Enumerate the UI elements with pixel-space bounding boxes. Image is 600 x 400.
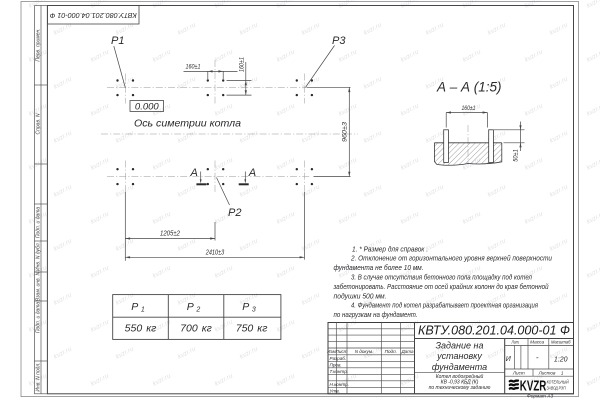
svg-text:2. Отклонение от горизонтально: 2. Отклонение от горизонтального уровня … <box>350 255 552 263</box>
svg-text:Инв. N подл.: Инв. N подл. <box>36 362 42 391</box>
svg-text:1. * Размер для справок .: 1. * Размер для справок . <box>352 245 428 253</box>
svg-text:А – А (1:5): А – А (1:5) <box>436 80 502 95</box>
svg-text:4. Фундамент под котел разраба: 4. Фундамент под котел разрабатывает про… <box>351 302 538 310</box>
svg-text:0.000: 0.000 <box>135 102 159 113</box>
svg-text:Дата: Дата <box>400 349 414 354</box>
svg-text:Перв. примен.: Перв. примен. <box>36 28 42 61</box>
svg-text:ЗАВОД РЭП: ЗАВОД РЭП <box>547 386 566 391</box>
svg-text:1:20: 1:20 <box>554 357 568 364</box>
svg-text:Н.контр.: Н.контр. <box>330 382 349 387</box>
svg-text:3. В случае отсутствия бетонно: 3. В случае отсутствия бетонного пола пл… <box>351 274 532 282</box>
svg-text:Инв. N дубл.: Инв. N дубл. <box>36 242 42 271</box>
svg-text:Пров.: Пров. <box>330 362 342 367</box>
svg-text:Масштаб: Масштаб <box>551 340 571 345</box>
svg-text:KVZR: KVZR <box>520 378 547 395</box>
svg-text:Подп. и дата: Подп. и дата <box>36 302 42 334</box>
svg-text:забетонировать. Расстояние от: забетонировать. Расстояние от осей крайн… <box>333 283 549 291</box>
svg-text:по нагрузкам на фундамент.: по нагрузкам на фундамент. <box>334 311 418 319</box>
svg-text:960±3: 960±3 <box>342 122 349 142</box>
svg-text:Задание на: Задание на <box>436 341 484 351</box>
svg-text:КОТЕЛЬНЫЙ: КОТЕЛЬНЫЙ <box>547 378 570 385</box>
svg-text:700кг: 700кг <box>180 323 212 335</box>
svg-text:установку: установку <box>436 351 482 361</box>
svg-text:50±1: 50±1 <box>513 149 520 162</box>
svg-text:550кг: 550кг <box>125 323 157 335</box>
svg-text:КВТУ.080.201.04.000-01 Ф: КВТУ.080.201.04.000-01 Ф <box>49 11 136 20</box>
svg-text:Листов: Листов <box>538 371 556 376</box>
svg-text:1205±2: 1205±2 <box>160 231 180 238</box>
svg-text:Взам. инв. N: Взам. инв. N <box>36 272 42 302</box>
svg-text:-: - <box>536 353 539 362</box>
svg-text:P2: P2 <box>228 207 241 219</box>
svg-text:Формат А3: Формат А3 <box>527 393 554 399</box>
svg-text:P1: P1 <box>111 35 124 47</box>
svg-text:P3: P3 <box>332 35 346 47</box>
svg-text:1: 1 <box>561 371 564 376</box>
svg-text:160±1: 160±1 <box>186 63 201 70</box>
svg-text:Т.контр.: Т.контр. <box>330 369 349 374</box>
svg-text:160±1: 160±1 <box>239 57 246 72</box>
svg-text:Ось симетрии котла: Ось симетрии котла <box>134 118 241 130</box>
svg-text:160±1: 160±1 <box>462 105 476 112</box>
svg-text:фундамента: фундамента <box>432 362 487 372</box>
svg-text:Лист: Лист <box>335 349 348 354</box>
svg-text:N докум.: N докум. <box>355 349 374 354</box>
svg-text:фундамента не более 10 мм.: фундамента не более 10 мм. <box>334 264 424 272</box>
svg-text:A: A <box>190 167 198 179</box>
svg-text:750кг: 750кг <box>236 323 268 335</box>
svg-text:подушки 500 мм.: подушки 500 мм. <box>334 292 387 300</box>
svg-text:A: A <box>248 167 256 179</box>
svg-text:Справ. N: Справ. N <box>36 113 42 134</box>
svg-text:КВТУ.080.201.04.000-01 Ф: КВТУ.080.201.04.000-01 Ф <box>418 323 570 338</box>
svg-text:Подп. и дата: Подп. и дата <box>36 207 42 239</box>
svg-text:Масса: Масса <box>530 340 544 345</box>
svg-text:2410±3: 2410±3 <box>205 249 224 256</box>
svg-text:Подп.: Подп. <box>385 349 397 354</box>
svg-text:Лист: Лист <box>512 371 525 376</box>
svg-text:Лит.: Лит. <box>511 340 520 345</box>
svg-text:Утв.: Утв. <box>330 388 340 393</box>
svg-text:по техническому заданию: по техническому заданию <box>429 385 491 391</box>
svg-text:Разраб.: Разраб. <box>330 356 347 361</box>
